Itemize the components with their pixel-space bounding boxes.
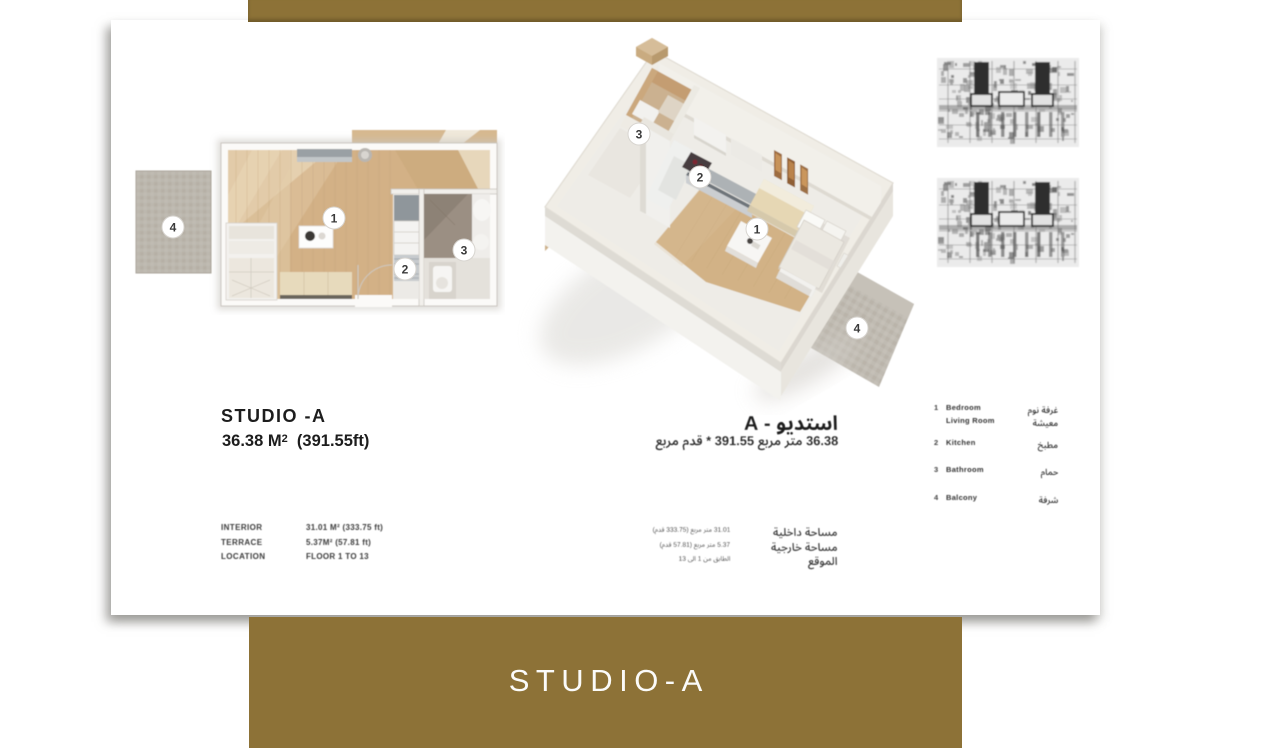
svg-text:3: 3 [636, 127, 643, 141]
svg-text:4: 4 [854, 321, 861, 335]
svg-text:4: 4 [170, 220, 177, 234]
svg-text:1: 1 [331, 211, 338, 225]
svg-text:1: 1 [754, 222, 761, 236]
svg-text:3: 3 [461, 243, 468, 257]
svg-text:2: 2 [697, 170, 704, 184]
svg-text:2: 2 [402, 262, 409, 276]
